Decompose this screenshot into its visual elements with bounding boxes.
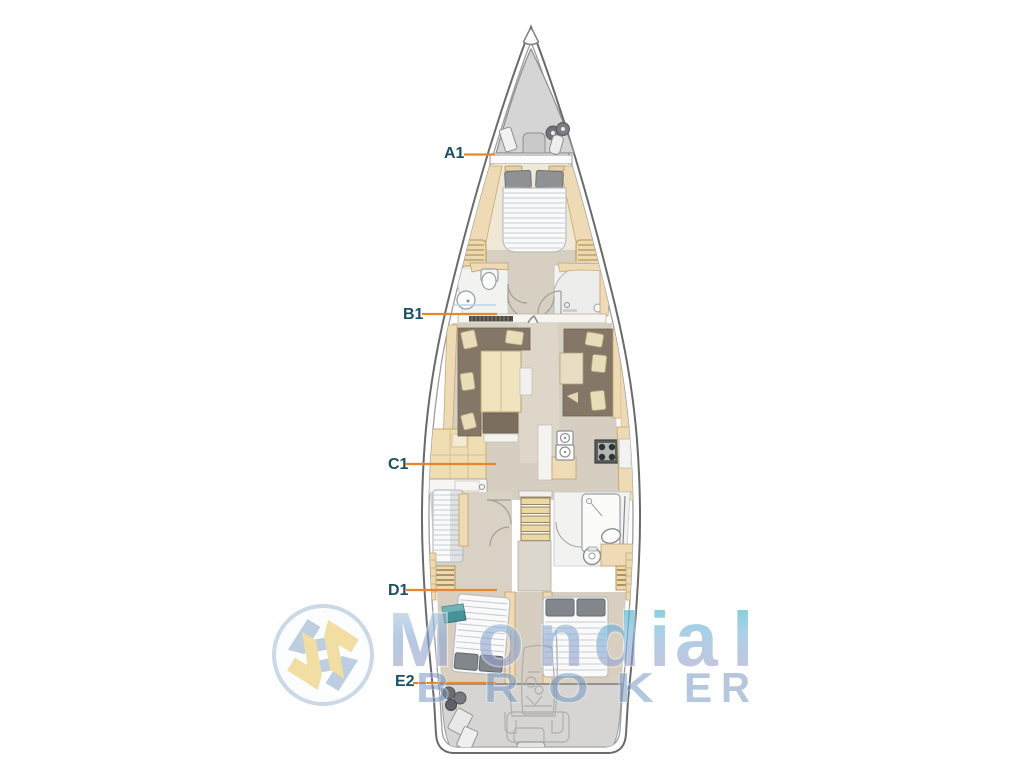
svg-text:E: E: [684, 664, 712, 711]
svg-text:B: B: [416, 664, 450, 711]
svg-text:O: O: [548, 664, 589, 711]
svg-text:A1: A1: [444, 145, 465, 162]
svg-text:R: R: [721, 664, 750, 711]
svg-text:K: K: [616, 664, 654, 711]
svg-text:B1: B1: [403, 306, 424, 323]
svg-text:R: R: [484, 664, 519, 711]
